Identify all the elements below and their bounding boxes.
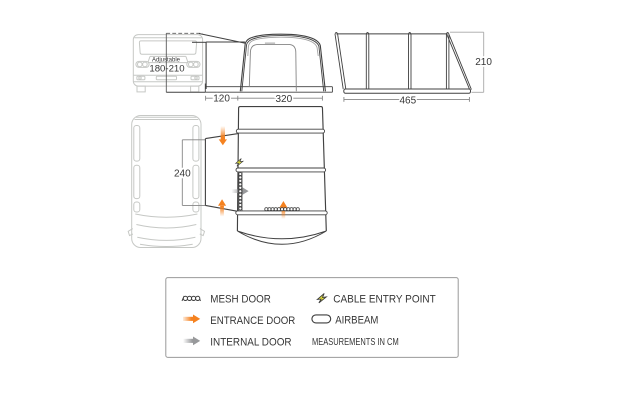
svg-text:180-210: 180-210	[149, 63, 184, 74]
svg-text:ENTRANCE DOOR: ENTRANCE DOOR	[210, 315, 295, 327]
svg-text:240: 240	[174, 168, 191, 179]
svg-text:CABLE ENTRY POINT: CABLE ENTRY POINT	[333, 294, 436, 306]
svg-text:210: 210	[475, 57, 492, 68]
svg-text:AIRBEAM: AIRBEAM	[335, 315, 378, 327]
svg-text:465: 465	[399, 96, 416, 107]
svg-text:INTERNAL DOOR: INTERNAL DOOR	[210, 337, 292, 349]
svg-text:120: 120	[213, 94, 230, 105]
svg-text:320: 320	[275, 94, 292, 105]
svg-text:MESH DOOR: MESH DOOR	[210, 294, 271, 306]
svg-text:MEASUREMENTS IN CM: MEASUREMENTS IN CM	[312, 337, 399, 348]
